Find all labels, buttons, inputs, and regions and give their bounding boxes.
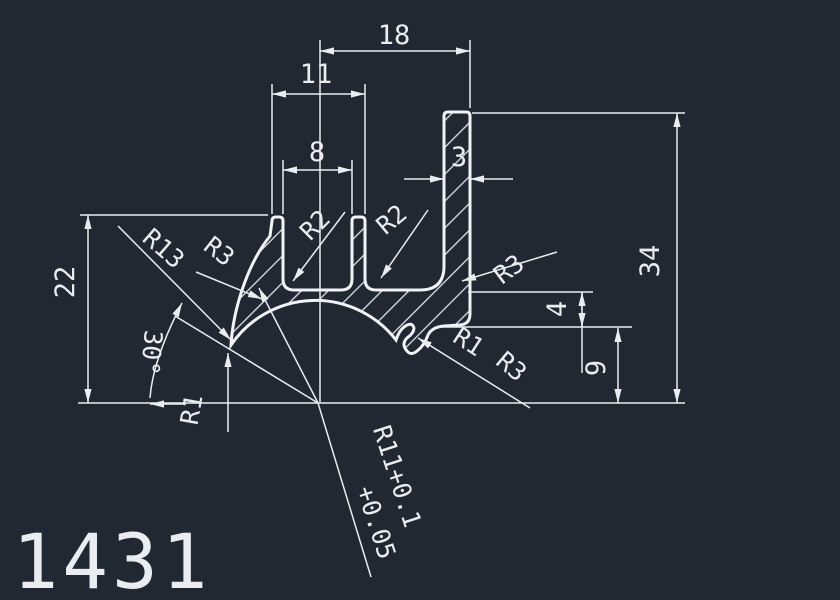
dim-web-gap: 4 [542,301,573,317]
dim-top-outer: 18 [378,20,411,51]
dim-foot-height: 9 [581,360,612,376]
part-number: 1431 [12,517,211,600]
dim-slot-width: 8 [309,137,325,168]
dim-fingers-outer: 11 [300,59,333,90]
cad-drawing-viewport[interactable]: 18 11 8 3 22 34 4 9 R13 R3 R2 R2 R3 R1 R… [0,0,840,600]
dim-right-height: 34 [635,245,666,278]
dim-leg-thickness: 3 [451,142,467,173]
dim-left-height: 22 [50,266,81,299]
label-angle-30: 30° [135,329,168,377]
label-r1-tip: R1 [175,392,209,427]
